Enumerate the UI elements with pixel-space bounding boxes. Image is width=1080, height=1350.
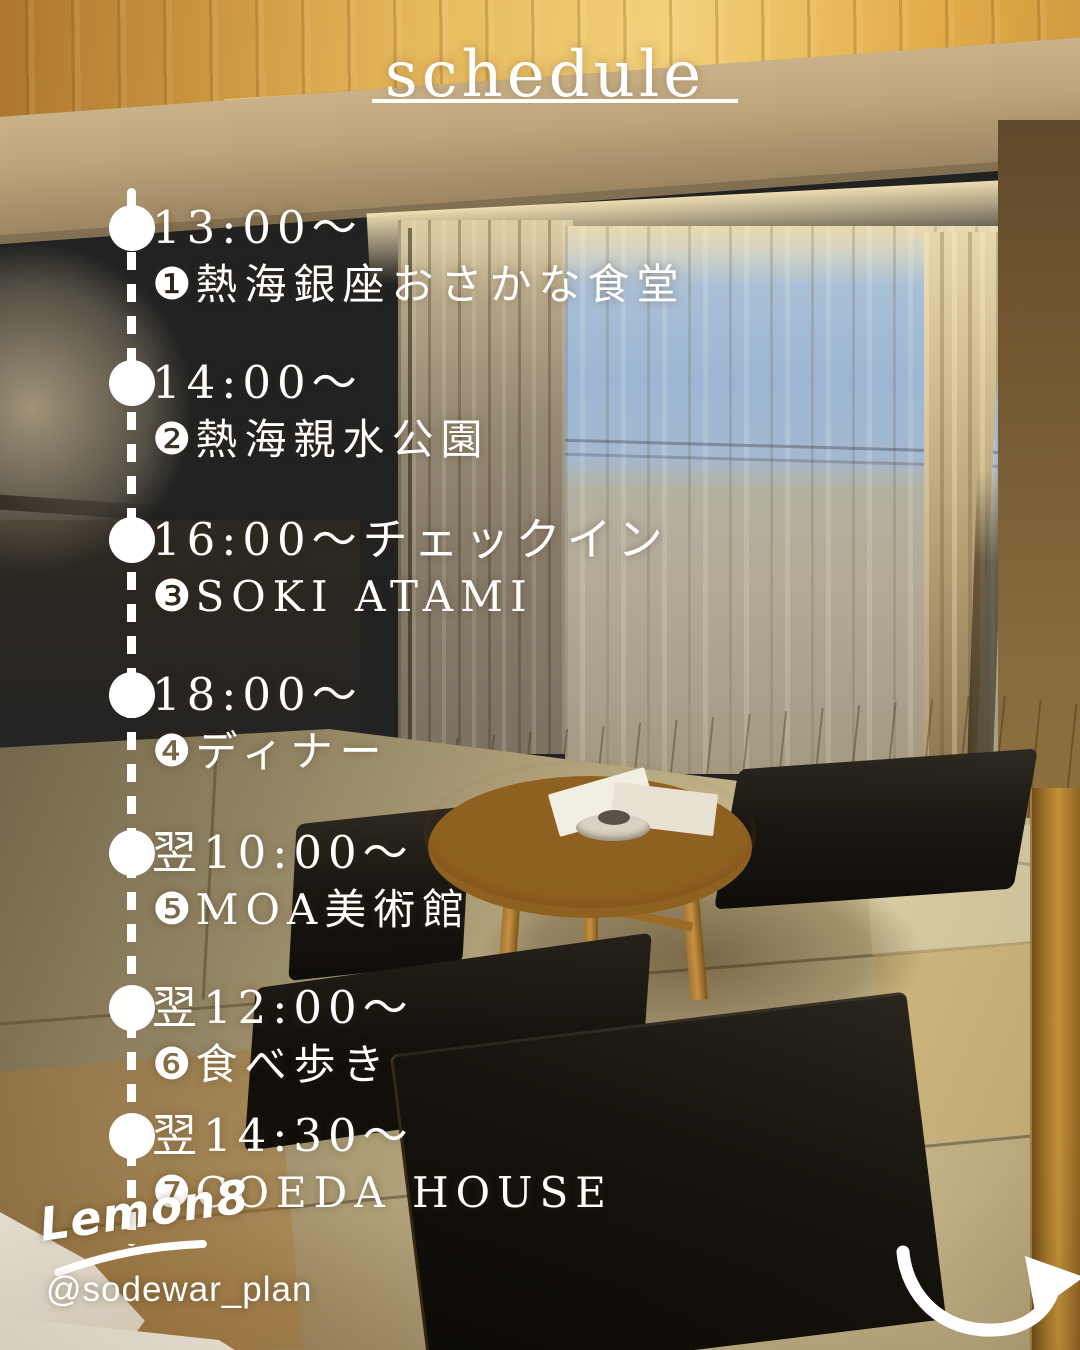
item-place: ❻食べ歩き (152, 1042, 414, 1088)
schedule-item-4: 18:00〜 ❹ディナー (152, 670, 389, 775)
item-place-label: MOA美術館 (195, 885, 471, 934)
item-time: 翌14:30〜 (152, 1111, 613, 1161)
title-underline (372, 99, 738, 103)
item-time: 翌12:00〜 (152, 983, 414, 1033)
schedule-item-2: 14:00〜 ❷熱海親水公園 (152, 358, 489, 463)
item-place-label: 熱海銀座おさかな食堂 (195, 260, 685, 309)
circled-number-icon: ❹ (152, 726, 191, 777)
item-place: ❺MOA美術館 (152, 887, 471, 933)
item-time: 16:00〜チェックイン (152, 515, 669, 565)
dish-item (598, 810, 630, 825)
item-place-label: 食べ歩き (195, 1040, 391, 1089)
schedule-item-6: 翌12:00〜 ❻食べ歩き (152, 983, 414, 1088)
schedule-item-5: 翌10:00〜 ❺MOA美術館 (152, 828, 471, 933)
schedule-item-1: 13:00〜 ❶熱海銀座おさかな食堂 (152, 203, 685, 308)
item-time: 翌10:00〜 (152, 828, 471, 878)
item-time: 13:00〜 (152, 203, 685, 253)
circled-number-icon: ❶ (152, 259, 191, 310)
timeline-dot (109, 830, 155, 876)
circled-number-icon: ❻ (152, 1039, 191, 1090)
schedule-item-3: 16:00〜チェックイン ❸SOKI ATAMI (152, 515, 669, 620)
timeline-dot (109, 205, 155, 251)
item-place: ❶熱海銀座おさかな食堂 (152, 262, 685, 308)
timeline-dot (109, 985, 155, 1031)
swipe-arrow-icon[interactable] (888, 1244, 1080, 1350)
item-place-label: COEDA HOUSE (195, 1168, 612, 1217)
post-canvas: schedule 13:00〜 ❶熱海銀座おさかな食堂 14:00〜 ❷熱海親水… (0, 0, 1080, 1350)
timeline-dot (109, 360, 155, 406)
item-time: 14:00〜 (152, 358, 489, 408)
item-place-label: 熱海親水公園 (195, 415, 489, 464)
timeline-dot (109, 517, 155, 563)
timeline-dot (109, 672, 155, 718)
floor-cushion (714, 749, 1038, 910)
item-place-label: SOKI ATAMI (195, 572, 533, 621)
item-place-label: ディナー (195, 727, 388, 776)
username-handle: @sodewar_plan (46, 1270, 312, 1310)
item-place: ❷熱海親水公園 (152, 417, 489, 463)
circled-number-icon: ❷ (152, 414, 191, 465)
circled-number-icon: ❸ (152, 571, 191, 622)
timeline-dot (109, 1113, 155, 1159)
item-place: ❸SOKI ATAMI (152, 574, 669, 620)
item-time: 18:00〜 (152, 670, 389, 720)
circled-number-icon: ❺ (152, 884, 191, 935)
item-place: ❹ディナー (152, 729, 389, 775)
